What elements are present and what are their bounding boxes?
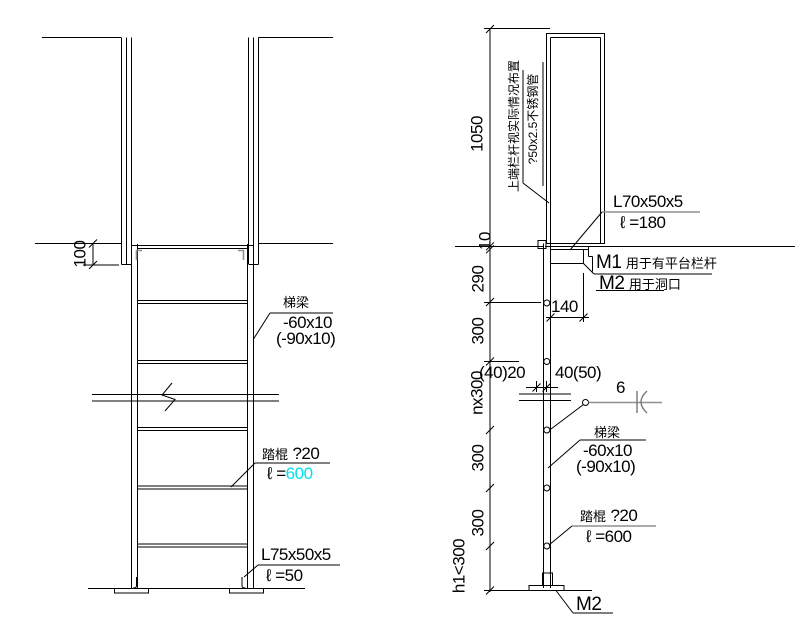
side-view-dim-offsets — [526, 381, 558, 392]
front-base-angle-length: ℓ =50 — [266, 567, 303, 584]
front-rung-length: ℓ =600 — [267, 465, 313, 482]
front-dim-100-label: 100 — [72, 241, 89, 268]
side-dim-290-label: 290 — [470, 266, 487, 293]
front-rung-label-text: 踏棍 — [262, 447, 288, 462]
side-rung-label-text: 踏棍 — [580, 509, 606, 524]
side-m2-mark: M2 — [599, 273, 624, 294]
side-rung-length: ℓ =600 — [586, 528, 632, 545]
side-rail-note-line1: 上端栏杆视实际情况布置 — [508, 60, 520, 192]
side-m1-text: 用于有平台栏杆 — [626, 256, 717, 271]
side-top-angle-length: ℓ =180 — [620, 214, 666, 231]
front-beam-size-alt: (-90x10) — [276, 330, 335, 347]
side-dim-300-top-label: 300 — [470, 318, 487, 345]
front-view-break-symbol — [162, 383, 175, 411]
side-base-mark: M2 — [576, 595, 601, 614]
side-rung-spec: ?20 — [610, 506, 637, 525]
front-view-foot-clips — [133, 577, 246, 588]
side-dim-140-label: 140 — [551, 298, 578, 315]
ladder-detail-drawing: 100 梯梁 -60x10 (-90x10) 踏棍 ?20 ℓ =600 L75… — [0, 0, 808, 622]
weld-symbol — [551, 391, 662, 429]
side-view-structure — [500, 34, 795, 591]
front-rung-length-prefix: ℓ = — [267, 464, 286, 483]
weld-size-label: 6 — [616, 379, 625, 396]
side-offset-right-label: 40(50) — [555, 364, 601, 381]
front-view-corner-clips — [137, 251, 244, 261]
side-beam-label: 梯梁 — [594, 426, 620, 439]
front-base-angle-label: L75x50x5 — [261, 546, 331, 563]
side-dim-h1-label: h1<300 — [451, 539, 468, 593]
side-dim-300-mid-label: 300 — [470, 445, 487, 472]
side-offset-left-label: (40)20 — [479, 364, 525, 381]
side-dim-300-low-label: 300 — [470, 510, 487, 537]
side-rail-note-line2: ?50x2.5不锈钢管 — [527, 74, 539, 165]
side-m1-note: M1 用于有平台栏杆 — [596, 253, 717, 272]
front-rung-label: 踏棍 ?20 — [262, 445, 319, 463]
side-dim-1050-label: 1050 — [469, 116, 486, 152]
side-rung-label: 踏棍 ?20 — [580, 507, 637, 525]
side-m2-text: 用于洞口 — [629, 277, 681, 292]
front-rung-length-value: 600 — [286, 464, 313, 483]
side-m1-mark: M1 — [596, 252, 621, 273]
side-top-angle-label: L70x50x5 — [613, 193, 683, 210]
front-beam-label: 梯梁 — [283, 296, 309, 309]
side-dim-10-label: 10 — [477, 232, 494, 250]
front-rung-spec: ?20 — [292, 444, 319, 463]
side-beam-size-alt: (-90x10) — [576, 458, 635, 475]
drawing-linework — [0, 0, 808, 622]
side-view-rung-holes — [544, 300, 550, 549]
side-m2-note: M2 用于洞口 — [599, 274, 681, 293]
